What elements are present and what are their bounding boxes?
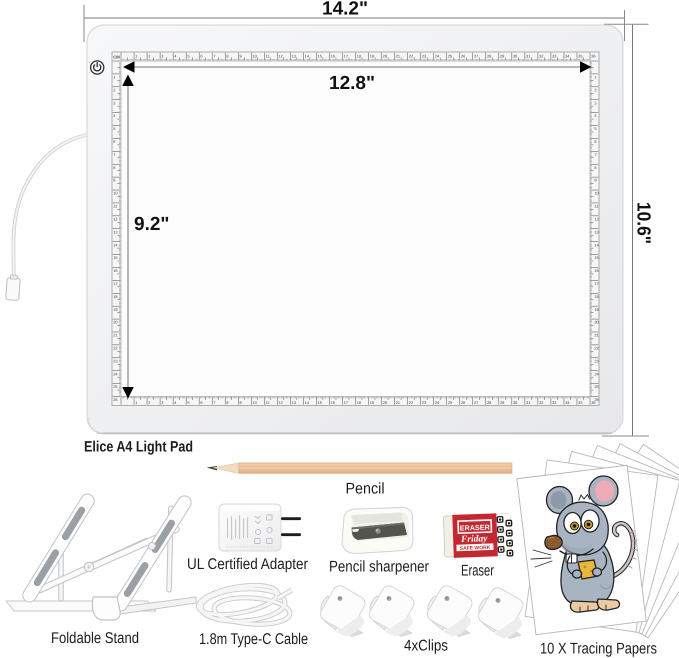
svg-text:25: 25 xyxy=(594,384,598,389)
svg-text:9.2": 9.2" xyxy=(134,214,169,235)
svg-text:7: 7 xyxy=(594,152,596,157)
svg-text:15: 15 xyxy=(594,255,598,260)
svg-text:9: 9 xyxy=(239,53,241,58)
svg-text:2: 2 xyxy=(148,400,150,405)
svg-text:25: 25 xyxy=(113,384,117,389)
svg-text:21: 21 xyxy=(113,333,117,338)
svg-text:26: 26 xyxy=(461,53,465,58)
svg-text:Friday: Friday xyxy=(460,534,489,545)
svg-text:18: 18 xyxy=(113,294,117,299)
svg-text:11: 11 xyxy=(266,53,270,58)
svg-text:18: 18 xyxy=(357,400,361,405)
svg-text:9: 9 xyxy=(113,178,115,183)
svg-text:13: 13 xyxy=(113,229,117,234)
svg-text:11: 11 xyxy=(594,204,598,209)
svg-text:1: 1 xyxy=(135,400,137,405)
svg-text:UL Certified Adapter: UL Certified Adapter xyxy=(187,556,308,573)
svg-text:28: 28 xyxy=(487,400,491,405)
svg-text:10.6": 10.6" xyxy=(633,202,654,244)
svg-text:SAFE WORK: SAFE WORK xyxy=(460,545,491,552)
svg-text:26: 26 xyxy=(113,397,117,402)
svg-text:21: 21 xyxy=(594,333,598,338)
svg-text:ERASER: ERASER xyxy=(460,523,491,533)
svg-text:6: 6 xyxy=(113,139,115,144)
svg-text:22: 22 xyxy=(113,345,117,350)
svg-text:11: 11 xyxy=(113,204,117,209)
svg-text:7: 7 xyxy=(213,400,215,405)
svg-text:8: 8 xyxy=(113,165,115,170)
svg-text:12: 12 xyxy=(594,216,598,221)
svg-text:1: 1 xyxy=(594,75,596,80)
svg-text:8: 8 xyxy=(226,400,228,405)
svg-text:4xClips: 4xClips xyxy=(404,638,448,655)
svg-text:3: 3 xyxy=(161,400,163,405)
svg-text:26: 26 xyxy=(461,400,465,405)
svg-text:9: 9 xyxy=(594,178,596,183)
svg-text:15: 15 xyxy=(113,255,117,260)
svg-text:17: 17 xyxy=(113,281,117,286)
svg-text:16: 16 xyxy=(331,53,335,58)
svg-text:1: 1 xyxy=(135,53,137,58)
svg-text:5: 5 xyxy=(113,126,115,131)
svg-text:5: 5 xyxy=(187,53,189,58)
svg-text:1: 1 xyxy=(113,75,115,80)
svg-text:25: 25 xyxy=(448,400,452,405)
svg-text:22: 22 xyxy=(594,345,598,350)
svg-text:17: 17 xyxy=(344,400,348,405)
svg-text:23: 23 xyxy=(594,358,598,363)
svg-text:2: 2 xyxy=(148,53,150,58)
svg-text:16: 16 xyxy=(113,268,117,273)
svg-text:8: 8 xyxy=(226,53,228,58)
svg-text:3: 3 xyxy=(594,100,596,105)
svg-text:23: 23 xyxy=(422,400,426,405)
svg-text:15: 15 xyxy=(318,53,322,58)
svg-text:1.8m Type-C Cable: 1.8m Type-C Cable xyxy=(199,631,308,648)
svg-text:18: 18 xyxy=(357,53,361,58)
svg-text:9: 9 xyxy=(239,400,241,405)
svg-text:11: 11 xyxy=(266,400,270,405)
svg-text:28: 28 xyxy=(487,53,491,58)
svg-text:26: 26 xyxy=(594,397,598,402)
svg-text:23: 23 xyxy=(113,358,117,363)
svg-text:15: 15 xyxy=(318,400,322,405)
svg-text:35: 35 xyxy=(578,400,582,405)
svg-text:13: 13 xyxy=(292,53,296,58)
svg-text:27: 27 xyxy=(474,400,478,405)
svg-text:Foldable Stand: Foldable Stand xyxy=(51,630,139,647)
svg-text:12: 12 xyxy=(113,216,117,221)
svg-text:33: 33 xyxy=(552,400,556,405)
svg-text:Pencil: Pencil xyxy=(346,481,385,498)
svg-text:6: 6 xyxy=(594,139,596,144)
svg-text:19: 19 xyxy=(594,307,598,312)
svg-text:Pencil sharpener: Pencil sharpener xyxy=(329,559,429,576)
svg-text:12: 12 xyxy=(279,53,283,58)
svg-text:22: 22 xyxy=(409,53,413,58)
svg-text:33: 33 xyxy=(552,53,556,58)
svg-text:7: 7 xyxy=(213,53,215,58)
svg-text:21: 21 xyxy=(396,53,400,58)
svg-text:5: 5 xyxy=(594,126,596,131)
svg-text:25: 25 xyxy=(448,53,452,58)
svg-text:12.8": 12.8" xyxy=(329,73,375,94)
svg-text:31: 31 xyxy=(526,53,530,58)
svg-text:19: 19 xyxy=(113,307,117,312)
svg-text:10 X Tracing Papers: 10 X Tracing Papers xyxy=(540,641,657,658)
svg-text:2: 2 xyxy=(594,87,596,92)
svg-text:6: 6 xyxy=(200,53,202,58)
svg-text:22: 22 xyxy=(409,400,413,405)
svg-text:7: 7 xyxy=(113,152,115,157)
svg-text:CM: CM xyxy=(113,55,120,60)
svg-text:27: 27 xyxy=(474,53,478,58)
svg-text:13: 13 xyxy=(594,229,598,234)
svg-text:31: 31 xyxy=(526,400,530,405)
svg-text:19: 19 xyxy=(370,53,374,58)
svg-text:3: 3 xyxy=(113,100,115,105)
svg-text:32: 32 xyxy=(539,53,543,58)
svg-text:29: 29 xyxy=(500,400,504,405)
svg-text:14.2": 14.2" xyxy=(322,0,368,20)
svg-text:3: 3 xyxy=(161,53,163,58)
svg-text:17: 17 xyxy=(344,53,348,58)
svg-text:21: 21 xyxy=(396,400,400,405)
svg-text:23: 23 xyxy=(422,53,426,58)
svg-text:16: 16 xyxy=(331,400,335,405)
svg-text:Elice A4 Light Pad: Elice A4 Light Pad xyxy=(84,439,193,456)
svg-text:17: 17 xyxy=(594,281,598,286)
svg-text:29: 29 xyxy=(500,53,504,58)
svg-text:19: 19 xyxy=(370,400,374,405)
svg-text:6: 6 xyxy=(200,400,202,405)
svg-text:35: 35 xyxy=(578,53,582,58)
svg-text:13: 13 xyxy=(292,400,296,405)
svg-text:18: 18 xyxy=(594,294,598,299)
svg-text:5: 5 xyxy=(187,400,189,405)
svg-text:Eraser: Eraser xyxy=(461,563,494,580)
svg-text:32: 32 xyxy=(539,400,543,405)
svg-text:12: 12 xyxy=(279,400,283,405)
svg-text:8: 8 xyxy=(594,165,596,170)
svg-text:2: 2 xyxy=(113,87,115,92)
svg-text:36: 36 xyxy=(591,53,595,58)
svg-text:16: 16 xyxy=(594,268,598,273)
